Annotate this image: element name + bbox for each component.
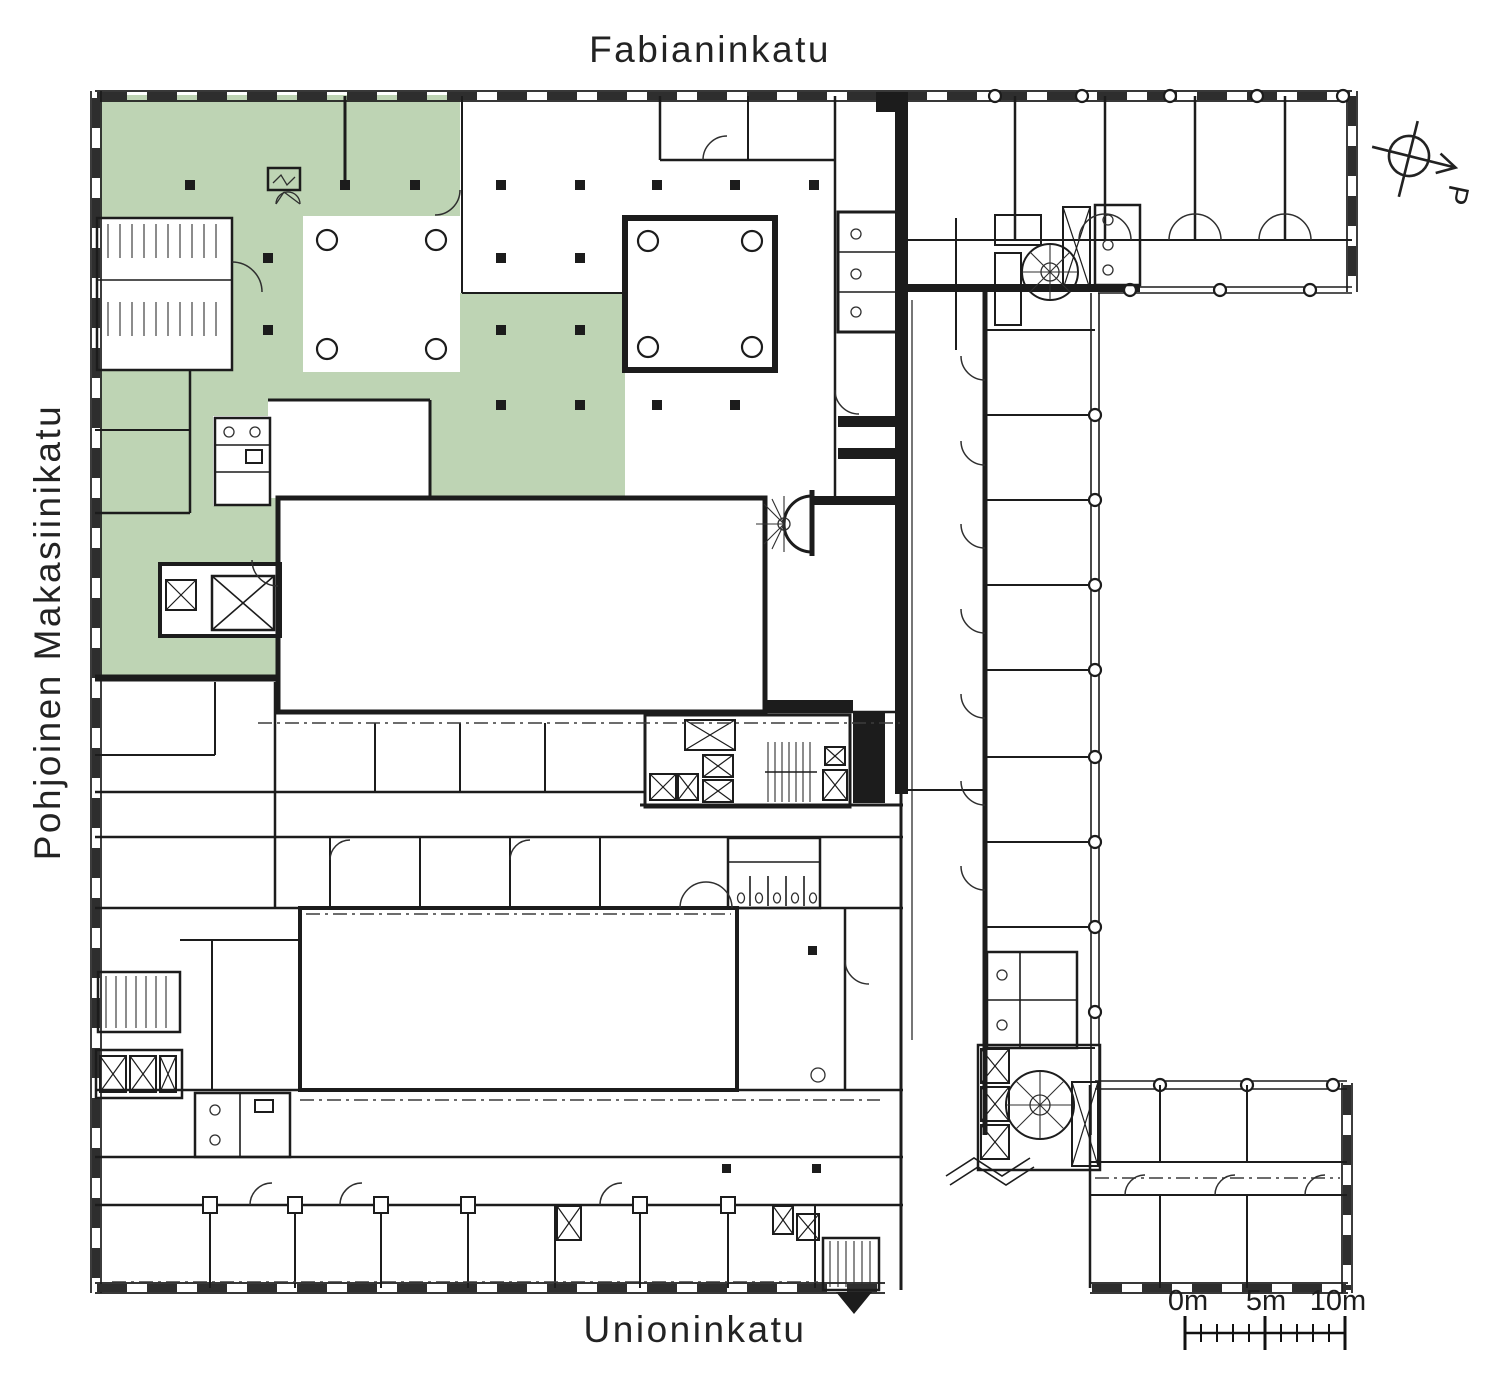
street-label-top: Fabianinkatu [589,29,831,70]
street-label-left: Pohjoinen Makasiinikatu [27,404,68,861]
spiral-stair-top-wing [1022,244,1078,300]
north-label: P [1439,182,1474,208]
floor-plan-page: Fabianinkatu Pohjoinen Makasiinikatu Uni… [0,0,1500,1393]
stairwell-southwest [98,972,180,1032]
toilets-east-margin [838,212,902,459]
scale-bar: 0m 5m 10m [1168,1285,1366,1350]
top-wing [905,96,1352,350]
toilets-central [728,838,820,908]
right-wing [903,288,1101,1135]
scale-label-0m: 0m [1168,1285,1208,1317]
stairwell-south-entrance [823,1238,879,1314]
elevators-central [650,720,847,802]
toilets-right-wing [987,952,1077,1048]
hall-upper [278,498,765,712]
skylight-court-2 [625,218,775,370]
hall-lower [300,908,737,1090]
north-arrow-icon: P [1362,112,1474,208]
floor-plan-drawing: Fabianinkatu Pohjoinen Makasiinikatu Uni… [0,0,1500,1393]
south-service-cluster [946,1045,1100,1185]
elevators-south-band [557,1206,819,1240]
scale-label-10m: 10m [1310,1285,1366,1317]
scale-label-5m: 5m [1246,1285,1286,1317]
toilets-southwest [195,1093,290,1157]
skylight-court-1 [303,216,460,372]
street-label-bottom: Unioninkatu [584,1309,807,1350]
